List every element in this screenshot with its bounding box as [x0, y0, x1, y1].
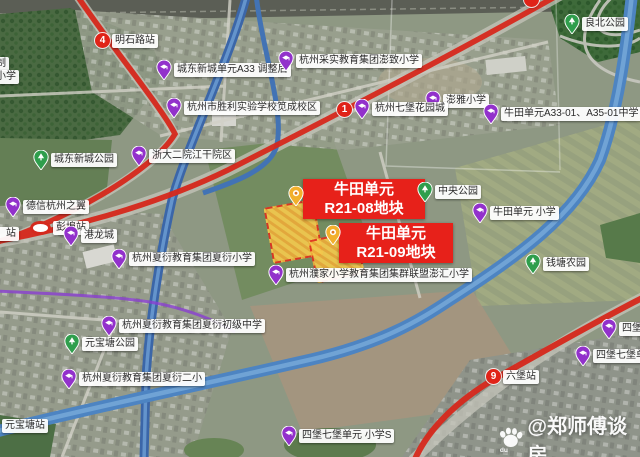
label-xiayan-primary[interactable]: 杭州夏衍教育集团夏衍小学: [111, 249, 255, 269]
school-pin-icon: [601, 319, 617, 339]
label-partial-xiaoxue[interactable]: 小学: [0, 70, 19, 84]
map-label: 牛田单元 小学: [490, 206, 559, 220]
metro-line-badge: 9: [486, 369, 501, 384]
label-niutian-primary[interactable]: 牛田单元 小学: [472, 203, 559, 223]
map-label: 杭州夏衍教育集团夏衍初级中学: [119, 319, 265, 333]
map-label: 牛田单元A33-01、A35-01中学: [501, 107, 640, 121]
station-liubao[interactable]: 9六堡站: [486, 369, 539, 384]
map-label: 城东新城公园: [51, 153, 117, 167]
parcel-pin-icon: [325, 225, 341, 245]
map-label: 杭州七堡花园城: [372, 102, 448, 116]
map-label: 四堡七堡单元 小学S: [299, 429, 394, 443]
map-label: 小学: [0, 70, 19, 84]
label-liangbei-park[interactable]: 良北公园: [564, 14, 628, 34]
parcel-pin-r21-08[interactable]: [288, 186, 304, 206]
metro-line-badge: 1: [337, 102, 352, 117]
map-label: 杭州市胜利实验学校笕成校区: [184, 101, 320, 115]
banner-r21-08: 牛田单元R21-08地块: [303, 179, 425, 219]
label-sibaoqibao-partial[interactable]: 四堡七堡: [601, 319, 640, 339]
station-yuanbaotang[interactable]: 元宝塘站: [2, 419, 48, 433]
school-pin-icon: [61, 369, 77, 389]
watermark: du @郑师傅谈房: [498, 410, 640, 457]
interchange-station-icon: [30, 221, 51, 235]
school-pin-icon: [483, 104, 499, 124]
map-label: 元宝塘公园: [82, 337, 138, 351]
satellite-planning-map: 牛田单元R21-08地块牛田单元R21-09地块4明石路站城东新城单元A33 调…: [0, 0, 640, 457]
label-dexin-wing[interactable]: 德信杭州之翼: [5, 197, 89, 217]
park-pin-icon: [525, 254, 541, 274]
label-chengdong-park[interactable]: 城东新城公园: [33, 150, 117, 170]
map-label: 元宝塘站: [2, 419, 48, 433]
station-mingshilu[interactable]: 4明石路站: [95, 33, 158, 48]
park-pin-icon: [417, 182, 433, 202]
park-pin-icon: [33, 150, 49, 170]
map-label: ）站: [0, 227, 19, 241]
label-niutian-a33-school[interactable]: 牛田单元A33-01、A35-01中学: [483, 104, 640, 124]
map-label: 钱塘农园: [543, 257, 589, 271]
school-pin-icon: [166, 98, 182, 118]
label-chengdong-a33[interactable]: 城东新城单元A33 调整后: [156, 60, 291, 80]
map-label: 杭州采实教育集团澎致小学: [296, 54, 422, 68]
school-pin-icon: [5, 197, 21, 217]
school-pin-icon: [472, 203, 488, 223]
metro-line-badge: 4: [95, 33, 110, 48]
map-label: 明石路站: [112, 34, 158, 48]
label-zheda-hospital[interactable]: 浙大二院江干院区: [131, 146, 235, 166]
watermark-text: @郑师傅谈房: [527, 410, 640, 457]
map-label: 制: [0, 57, 9, 71]
label-shengli-school[interactable]: 杭州市胜利实验学校笕成校区: [166, 98, 320, 118]
map-label: 港龙城: [81, 229, 117, 243]
label-caishi-school[interactable]: 杭州采实教育集团澎致小学: [278, 51, 422, 71]
banner-r21-09: 牛田单元R21-09地块: [339, 223, 453, 263]
school-pin-icon: [156, 60, 172, 80]
label-xiayan-junior[interactable]: 杭州夏衍教育集团夏衍初级中学: [101, 316, 265, 336]
school-pin-icon: [63, 226, 79, 246]
label-partial-zhan[interactable]: ）站: [0, 227, 19, 241]
map-label: 城东新城单元A33 调整后: [174, 63, 291, 77]
label-xiayan-second[interactable]: 杭州夏衍教育集团夏衍二小: [61, 369, 205, 389]
station-qibao[interactable]: 1杭州七堡花园城: [337, 99, 448, 119]
school-pin-icon: [101, 316, 117, 336]
school-pin-icon: [575, 346, 591, 366]
school-pin-icon: [111, 249, 127, 269]
label-partial-zhi[interactable]: 制: [0, 57, 9, 71]
parcel-pin-icon: [288, 186, 304, 206]
label-yuanbaotang-park[interactable]: 元宝塘公园: [64, 334, 138, 354]
map-label: 杭州夏衍教育集团夏衍二小: [79, 372, 205, 386]
map-label: 四堡七堡单元 初中: [593, 349, 640, 363]
school-pin-icon: [278, 51, 294, 71]
label-pujia-penghui[interactable]: 杭州濮家小学教育集团集群联盟澎汇小学: [268, 265, 472, 285]
map-label: 杭州濮家小学教育集团集群联盟澎汇小学: [286, 268, 472, 282]
school-pin-icon: [354, 99, 370, 119]
map-label: 中央公园: [435, 185, 481, 199]
map-label: 六堡站: [503, 370, 539, 384]
baidu-paw-icon: du: [498, 424, 523, 454]
park-pin-icon: [64, 334, 80, 354]
map-label: 浙大二院江干院区: [149, 149, 235, 163]
label-sibaoqibao-junior[interactable]: 四堡七堡单元 初中: [575, 346, 640, 366]
school-pin-icon: [131, 146, 147, 166]
school-pin-icon: [268, 265, 284, 285]
label-sibaoqibao-primary[interactable]: 四堡七堡单元 小学S: [281, 426, 394, 446]
map-label: 四堡七堡: [619, 322, 640, 336]
park-pin-icon: [564, 14, 580, 34]
metro-line-badge: [524, 0, 539, 7]
map-label: 良北公园: [582, 17, 628, 31]
map-label: 杭州夏衍教育集团夏衍小学: [129, 252, 255, 266]
label-qiantang-farm[interactable]: 钱塘农园: [525, 254, 589, 274]
watermark-logo-sub: du: [500, 447, 508, 454]
label-central-park[interactable]: 中央公园: [417, 182, 481, 202]
parcel-pin-r21-09[interactable]: [325, 225, 341, 245]
station-badge-partial[interactable]: [524, 0, 539, 7]
school-pin-icon: [281, 426, 297, 446]
label-ganglongcheng[interactable]: 港龙城: [63, 226, 117, 246]
map-label: 德信杭州之翼: [23, 200, 89, 214]
